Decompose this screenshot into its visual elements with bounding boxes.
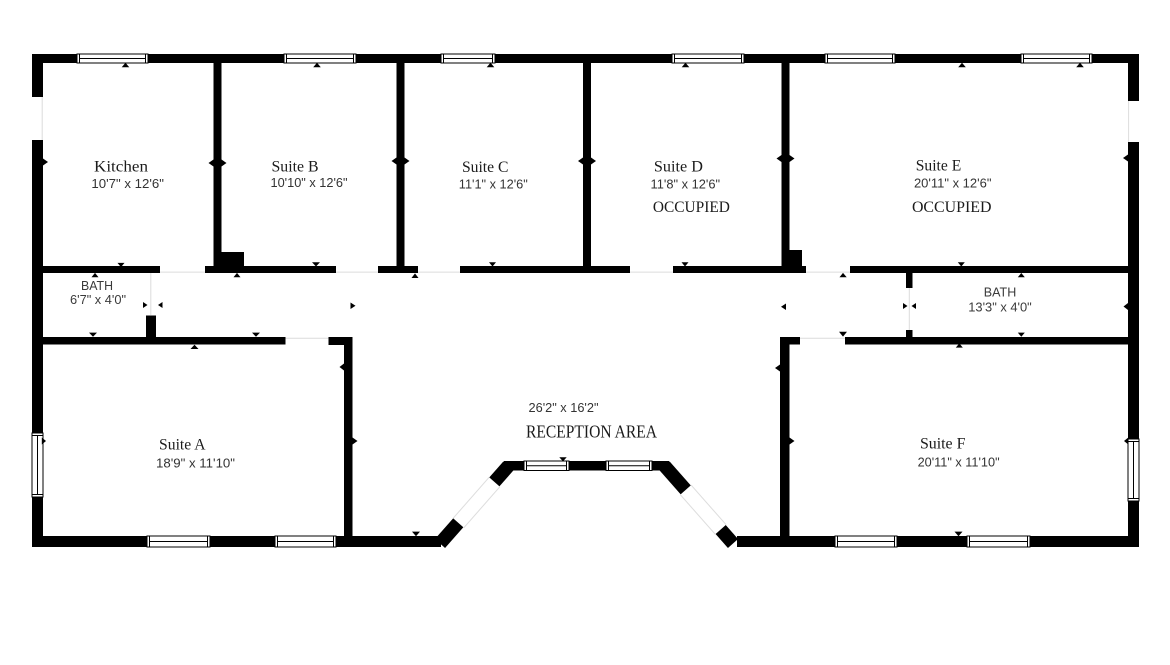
svg-text:Suite E: Suite E	[916, 158, 962, 175]
svg-text:BATH: BATH	[81, 278, 113, 293]
svg-text:20'11" x 12'6": 20'11" x 12'6"	[914, 176, 992, 191]
svg-text:10'7" x 12'6": 10'7" x 12'6"	[91, 176, 164, 191]
svg-text:10'10" x 12'6": 10'10" x 12'6"	[271, 175, 348, 190]
svg-text:20'11" x 11'10": 20'11" x 11'10"	[918, 454, 1000, 469]
svg-text:OCCUPIED: OCCUPIED	[653, 199, 730, 216]
svg-text:BATH: BATH	[984, 284, 1017, 299]
svg-text:26'2" x 16'2": 26'2" x 16'2"	[529, 400, 599, 415]
svg-text:Kitchen: Kitchen	[94, 159, 148, 176]
svg-text:Suite C: Suite C	[462, 159, 509, 176]
svg-text:18'9" x 11'10": 18'9" x 11'10"	[156, 455, 235, 470]
svg-text:Suite D: Suite D	[654, 159, 703, 176]
svg-text:Suite F: Suite F	[920, 436, 966, 453]
svg-text:11'8" x 12'6": 11'8" x 12'6"	[651, 177, 721, 192]
svg-text:6'7" x 4'0": 6'7" x 4'0"	[70, 292, 126, 307]
svg-text:RECEPTION AREA: RECEPTION AREA	[526, 422, 657, 442]
svg-text:Suite B: Suite B	[272, 158, 319, 175]
svg-text:OCCUPIED: OCCUPIED	[912, 199, 992, 216]
svg-text:Suite A: Suite A	[159, 436, 206, 453]
svg-text:11'1" x 12'6": 11'1" x 12'6"	[459, 176, 528, 191]
svg-text:13'3" x 4'0": 13'3" x 4'0"	[968, 300, 1032, 315]
